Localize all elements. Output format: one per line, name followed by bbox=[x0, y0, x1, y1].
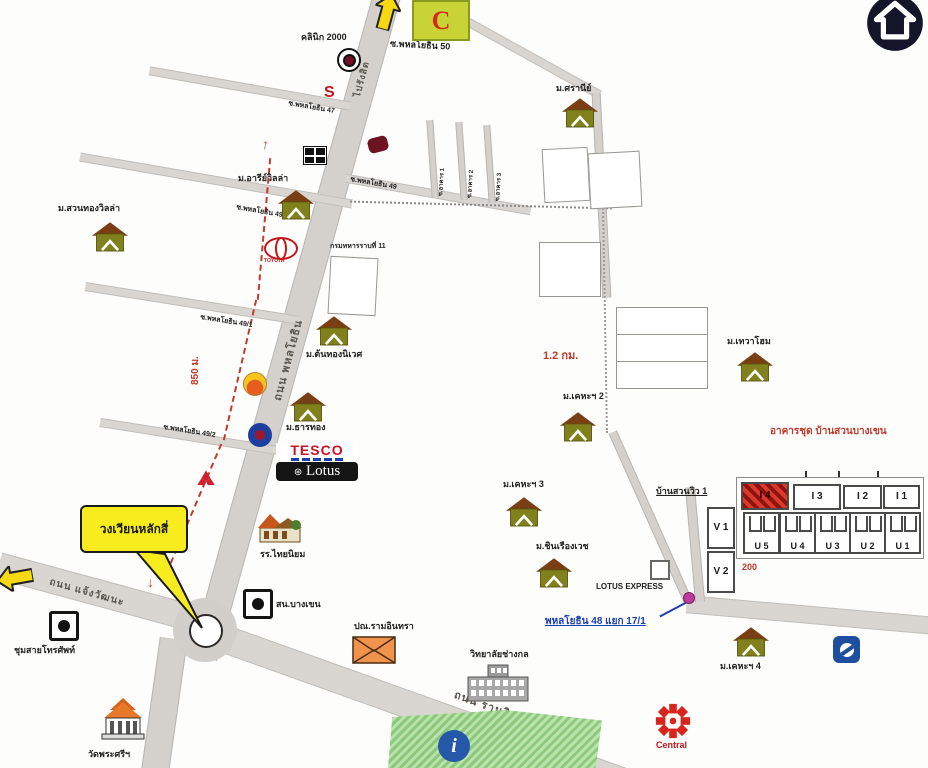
temple-label: วัดพระศรีฯ bbox=[88, 750, 130, 760]
mini-soi-3 bbox=[483, 125, 495, 203]
house-icon bbox=[278, 190, 314, 221]
gas-station-icon bbox=[248, 423, 272, 447]
house-icon bbox=[560, 412, 596, 443]
soi-48-label: พหลโยธิน 48 แยก 17/1 bbox=[545, 616, 646, 627]
school-label: รร.ไทยนิยม bbox=[260, 550, 305, 560]
army-label: กรมทหารราบที่ 11 bbox=[330, 243, 386, 251]
mitsubishi-icon bbox=[193, 470, 219, 493]
city-block bbox=[588, 151, 643, 210]
village-label: ม.อารีย์วิลล่า bbox=[238, 174, 288, 184]
condo-block-v1: V 1 bbox=[707, 507, 735, 549]
toyota-logo bbox=[264, 237, 298, 260]
lotus-express-label: LOTUS EXPRESS bbox=[596, 583, 663, 592]
house-icon bbox=[92, 222, 128, 253]
soi-48-pointer-line bbox=[659, 601, 688, 618]
post-office-icon bbox=[352, 636, 396, 664]
house-icon bbox=[737, 352, 773, 383]
callout-pointer bbox=[80, 548, 210, 636]
house-icon bbox=[562, 98, 598, 129]
lotus-express-icon bbox=[650, 560, 670, 580]
condo-annex-label: บ้านสวนวิว 1 bbox=[656, 487, 707, 497]
house-icon bbox=[506, 497, 542, 528]
suzuki-icon: S bbox=[324, 84, 335, 102]
village-label: ม.เทวาโฮม bbox=[727, 337, 771, 347]
route-arrow-up-icon: ↑ bbox=[261, 136, 271, 153]
house-icon bbox=[290, 392, 326, 423]
central-label: Central bbox=[656, 741, 687, 751]
condo-block-i4: I 4 bbox=[741, 482, 789, 510]
distance-1-2km: 1.2 กม. bbox=[543, 350, 578, 362]
clinic-target-icon bbox=[337, 48, 361, 72]
police-label: สน.บางเขน bbox=[276, 600, 321, 610]
house-icon bbox=[316, 316, 352, 347]
soi-47-road bbox=[149, 66, 351, 110]
village-label: ม.เคหะฯ 4 bbox=[720, 662, 761, 672]
home-button[interactable] bbox=[866, 0, 924, 52]
condo-block-i3: I 3 bbox=[793, 484, 841, 510]
condo-block-i2: I 2 bbox=[843, 485, 882, 509]
condo-tick bbox=[838, 471, 840, 477]
condo-distance-200: 200 bbox=[742, 563, 757, 573]
bank-logo-icon bbox=[833, 636, 860, 663]
soi-akan-3-label: ซ.อาคาร 3 bbox=[495, 173, 504, 202]
shell-icon bbox=[243, 372, 267, 396]
lotus-flower-icon: ⊛ bbox=[294, 467, 302, 478]
army-compound bbox=[328, 256, 379, 316]
condo-block-u5: U 5 bbox=[743, 512, 780, 554]
condo-block-u4: U 4 bbox=[779, 512, 816, 554]
map-canvas: ↑ ↓ ถนน พหลโยธิน ไปรังสิต ถนน แจ้งวัฒนะ … bbox=[0, 0, 928, 768]
condo-block-u1: U 1 bbox=[884, 512, 921, 554]
city-block bbox=[539, 242, 601, 297]
west-arrow-icon bbox=[0, 562, 35, 594]
bigc-letter: C bbox=[432, 6, 451, 36]
temple-icon bbox=[100, 698, 146, 742]
college-icon bbox=[466, 663, 530, 703]
city-block bbox=[542, 147, 591, 203]
city-block-ladder bbox=[616, 307, 708, 389]
road-east bbox=[686, 595, 928, 635]
distance-850m: 850 ม. bbox=[190, 356, 201, 385]
central-logo-icon bbox=[652, 702, 694, 740]
lotus-wordmark-box: ⊛ Lotus bbox=[276, 462, 358, 481]
soi-50-label: ซ.พหลโยธิน 50 bbox=[390, 39, 451, 52]
condo-tick bbox=[805, 471, 807, 477]
village-label: ม.เคหะฯ 3 bbox=[503, 480, 544, 490]
toyota-label: TOYOTA bbox=[264, 259, 284, 265]
village-label: ม.สวนทองวิลล่า bbox=[58, 204, 120, 214]
tesco-lotus-sign: TESCO ⊛ Lotus bbox=[276, 443, 358, 481]
soi-49-left-label: ซ.พหลโยธิน 49 bbox=[236, 204, 283, 220]
info-icon: i bbox=[438, 730, 470, 762]
phone-exchange-icon bbox=[49, 611, 79, 641]
tesco-dashes bbox=[276, 458, 358, 461]
junction-dot bbox=[683, 592, 695, 604]
village-label: ม.ชินเรืองเวช bbox=[536, 542, 589, 552]
bigc-logo: C bbox=[412, 0, 470, 41]
house-icon bbox=[733, 627, 769, 658]
market-grid-icon bbox=[303, 146, 327, 165]
clinic-label: คลินิก 2000 bbox=[301, 33, 347, 43]
police-station-icon bbox=[243, 589, 273, 619]
school-icon bbox=[258, 512, 302, 546]
condo-block-u3: U 3 bbox=[814, 512, 851, 554]
roundabout-callout: วงเวียนหลักสี่ bbox=[80, 505, 188, 553]
village-label: ม.ต้นทองนิเวศ bbox=[306, 350, 362, 360]
soi-akan-2-label: ซ.อาคาร 2 bbox=[467, 170, 476, 199]
condo-block-i1: I 1 bbox=[883, 485, 920, 509]
house-icon bbox=[536, 558, 572, 589]
village-label: ม.เคหะฯ 2 bbox=[563, 392, 604, 402]
college-label: วิทยาลัยช่างกล bbox=[470, 650, 529, 660]
condo-title: อาคารชุด บ้านสวนบางเขน bbox=[770, 426, 887, 437]
landmark-blob-icon bbox=[366, 135, 389, 155]
road-south-arm bbox=[140, 637, 187, 768]
condo-block-u2: U 2 bbox=[849, 512, 886, 554]
soi-49b-road bbox=[85, 282, 301, 325]
post-office-label: ปณ.รามอินทรา bbox=[354, 622, 414, 632]
village-label: ม.ศรานีย์ bbox=[556, 84, 591, 94]
tesco-wordmark: TESCO bbox=[276, 443, 358, 457]
road-condo-access bbox=[685, 487, 705, 602]
condo-tick bbox=[877, 471, 879, 477]
mini-soi-2 bbox=[455, 122, 467, 200]
phone-exchange-label: ชุมสายโทรศัพท์ bbox=[14, 646, 75, 656]
village-label: ม.ธารทอง bbox=[286, 423, 326, 433]
mini-soi-1 bbox=[426, 120, 438, 198]
condo-block-v2: V 2 bbox=[707, 551, 735, 593]
park-area bbox=[388, 710, 602, 768]
